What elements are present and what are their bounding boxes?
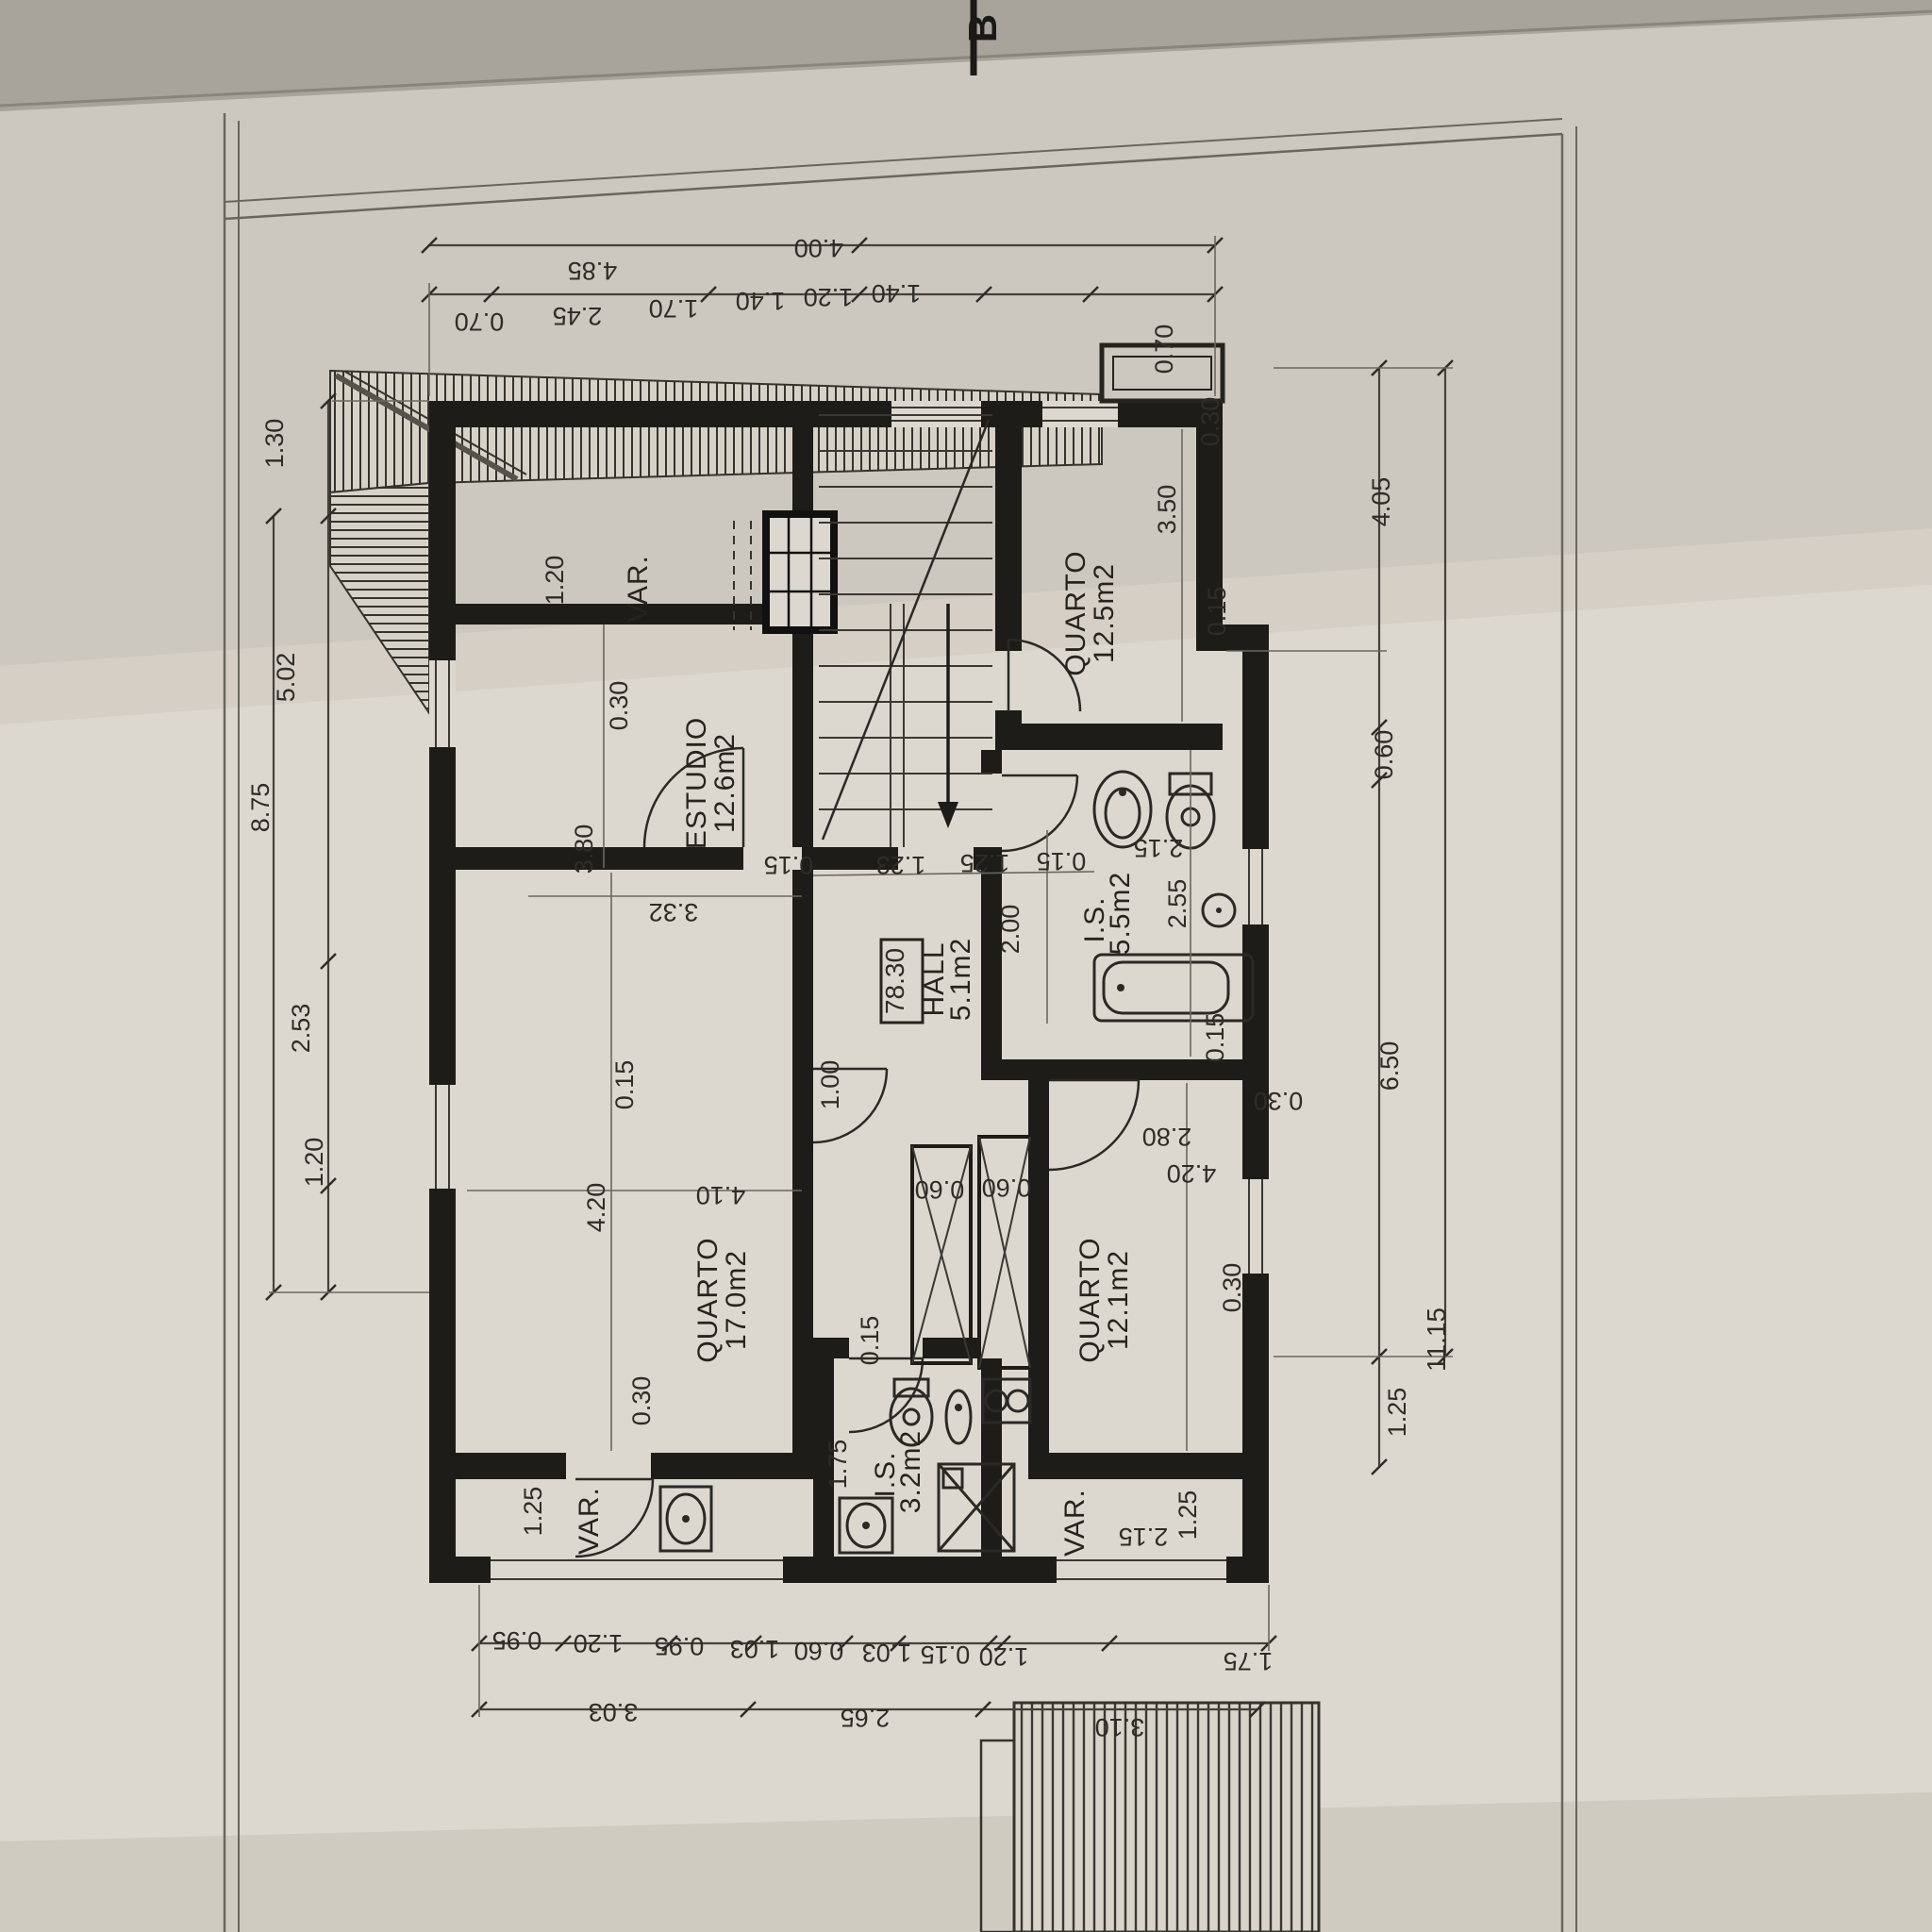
dim-bot-310: 3.10 xyxy=(1095,1713,1145,1741)
room-label-quarto121: QUARTO xyxy=(1074,1237,1106,1362)
dim-left-120: 1.20 xyxy=(300,1138,328,1188)
floor-plan-drawing: 0.702.451.701.401.201.404.854.001.305.02… xyxy=(0,0,1932,1932)
dim-top-070: 0.70 xyxy=(455,308,505,336)
dim-wall-015c: 0.15 xyxy=(1201,1013,1229,1063)
dim-right-060: 0.60 xyxy=(1370,730,1398,780)
dim-right-125: 1.25 xyxy=(1383,1388,1411,1438)
room-label-quarto125: QUARTO xyxy=(1060,550,1091,675)
dim-wall-015a: 0.15 xyxy=(1203,587,1231,637)
dim-left-502: 5.02 xyxy=(272,653,300,703)
dim-var-120: 1.20 xyxy=(541,556,569,606)
dim-bot-060: 0.60 xyxy=(794,1637,844,1665)
room-area-is55: 5.5m2 xyxy=(1105,872,1136,955)
dim-right-1115: 11.15 xyxy=(1422,1307,1451,1372)
dim-balcony-070: 0.70 xyxy=(1150,325,1178,375)
dim-bot-095b: 0.95 xyxy=(655,1632,705,1660)
dim-left-875: 8.75 xyxy=(246,783,275,833)
dim-left-130: 1.30 xyxy=(260,419,289,469)
dim-top-120: 1.20 xyxy=(804,283,854,311)
dim-is55-215: 2.15 xyxy=(1134,834,1184,862)
room-label-var3: VAR. xyxy=(1059,1489,1091,1557)
dim-bot-265: 2.65 xyxy=(841,1704,891,1732)
dim-stair-123: 1.23 xyxy=(876,851,926,879)
dim-top-140a: 1.40 xyxy=(736,287,786,315)
dim-top-485: 4.85 xyxy=(568,257,618,285)
dim-is55-255: 2.55 xyxy=(1163,879,1191,929)
room-area-estudio: 12.6m2 xyxy=(709,733,741,833)
dim-estudio-332: 3.32 xyxy=(649,898,699,926)
window-icon xyxy=(1242,1179,1269,1274)
dim-right-650: 6.50 xyxy=(1375,1041,1404,1091)
entrance-pergola-hatch xyxy=(981,1703,1319,1932)
dim-q17-410: 4.10 xyxy=(696,1181,746,1209)
dim-bot-095a: 0.95 xyxy=(492,1626,542,1655)
dim-q17-420: 4.20 xyxy=(582,1183,610,1233)
dim-top-140b: 1.40 xyxy=(872,279,922,308)
dim-top-400: 4.00 xyxy=(794,234,844,262)
dim-hall-200: 2.00 xyxy=(996,905,1024,955)
dim-wall-030c: 0.30 xyxy=(627,1376,656,1426)
dim-q17-015: 0.15 xyxy=(610,1060,639,1110)
window-icon xyxy=(429,660,456,747)
dim-corr-175: 1.75 xyxy=(824,1440,852,1490)
dim-top-245: 2.45 xyxy=(553,302,603,330)
dim-var2-125: 1.25 xyxy=(519,1487,547,1537)
dim-hall-100: 1.00 xyxy=(816,1060,844,1110)
room-area-quarto17: 17.0m2 xyxy=(721,1250,752,1350)
dim-right-405: 4.05 xyxy=(1367,477,1395,527)
dim-bot-103a: 1.03 xyxy=(730,1635,780,1663)
dim-q121-420: 4.20 xyxy=(1167,1159,1217,1188)
dim-left-253: 2.53 xyxy=(287,1004,315,1054)
dim-bot-175: 1.75 xyxy=(1224,1647,1274,1675)
level-marker-value: 78.30 xyxy=(880,948,909,1014)
dim-wall-030b: 0.30 xyxy=(1254,1087,1304,1115)
dim-bot-303: 3.03 xyxy=(589,1698,639,1726)
dim-top-170: 1.70 xyxy=(649,294,699,323)
dim-bot-120a: 1.20 xyxy=(574,1629,624,1657)
window-icon xyxy=(1242,849,1269,924)
dim-ward-060a: 0.60 xyxy=(915,1175,965,1204)
dim-estudio-030: 0.30 xyxy=(605,681,633,731)
window-icon xyxy=(1042,401,1118,427)
dim-bot-103b: 1.03 xyxy=(862,1639,912,1667)
dim-wall-030a: 0.30 xyxy=(1196,397,1224,447)
room-label-quarto17: QUARTO xyxy=(692,1237,724,1362)
room-area-quarto121: 12.1m2 xyxy=(1103,1250,1134,1350)
dim-var3-215: 2.15 xyxy=(1119,1523,1169,1551)
dim-wall-030d: 0.30 xyxy=(1218,1263,1246,1313)
dim-q125-350: 3.50 xyxy=(1153,485,1181,535)
photo-of-floor-plan: 0.702.451.701.401.201.404.854.001.305.02… xyxy=(0,0,1932,1932)
room-label-estudio: ESTUDIO xyxy=(681,717,712,849)
dim-stair-125: 1.25 xyxy=(960,849,1010,877)
dim-stair-015: 0.15 xyxy=(1037,847,1087,875)
dim-bot-015: 0.15 xyxy=(921,1641,971,1669)
window-icon xyxy=(429,1085,456,1189)
dim-var3-125: 1.25 xyxy=(1174,1491,1202,1541)
dim-q121-280: 2.80 xyxy=(1142,1123,1192,1151)
dim-ward-060b: 0.60 xyxy=(982,1174,1032,1202)
room-label-var1: VAR. xyxy=(623,555,654,623)
room-label-var2: VAR. xyxy=(574,1487,605,1555)
room-area-hall: 5.1m2 xyxy=(945,938,976,1021)
dim-estudio-380: 3.80 xyxy=(570,824,598,874)
room-area-quarto125: 12.5m2 xyxy=(1089,563,1120,663)
section-marker-b: B xyxy=(960,14,1005,42)
dim-bot-120b: 1.20 xyxy=(979,1642,1029,1671)
room-area-is32: 3.2m2 xyxy=(895,1430,926,1513)
dim-is32-015: 0.15 xyxy=(856,1316,884,1366)
dim-wall-015b: 0.15 xyxy=(764,851,814,879)
